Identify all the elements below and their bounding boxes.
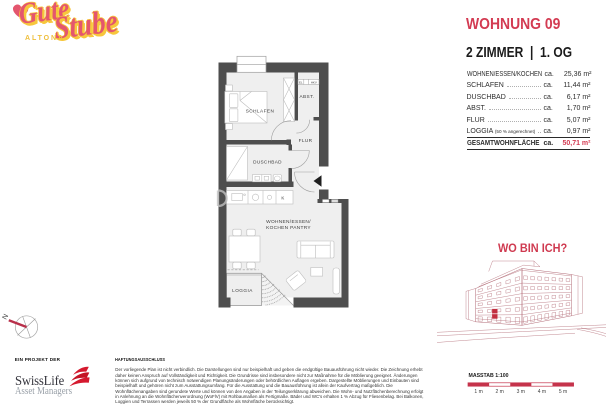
svg-text:DUSCHBAD: DUSCHBAD	[253, 159, 282, 164]
svg-text:SCHLAFEN: SCHLAFEN	[246, 109, 275, 114]
svg-text:3 m: 3 m	[517, 389, 525, 395]
svg-text:EL: EL	[299, 80, 303, 84]
svg-text:2 m: 2 m	[496, 389, 504, 395]
svg-text:HKV: HKV	[311, 80, 317, 84]
svg-text:4 m: 4 m	[538, 389, 546, 395]
svg-text:5 m: 5 m	[559, 389, 567, 395]
svg-text:1 m: 1 m	[474, 389, 482, 395]
svg-text:FLUR: FLUR	[299, 138, 313, 143]
svg-text:ABST.: ABST.	[299, 94, 314, 99]
svg-text:K: K	[281, 196, 284, 201]
svg-text:N: N	[2, 313, 11, 321]
svg-text:WOHNEN/ESSEN/: WOHNEN/ESSEN/	[266, 219, 311, 225]
svg-text:MASSTAB 1:100: MASSTAB 1:100	[469, 373, 509, 379]
svg-text:LOGGIA: LOGGIA	[232, 288, 253, 293]
svg-text:KOCHEN PANTRY: KOCHEN PANTRY	[266, 225, 311, 231]
